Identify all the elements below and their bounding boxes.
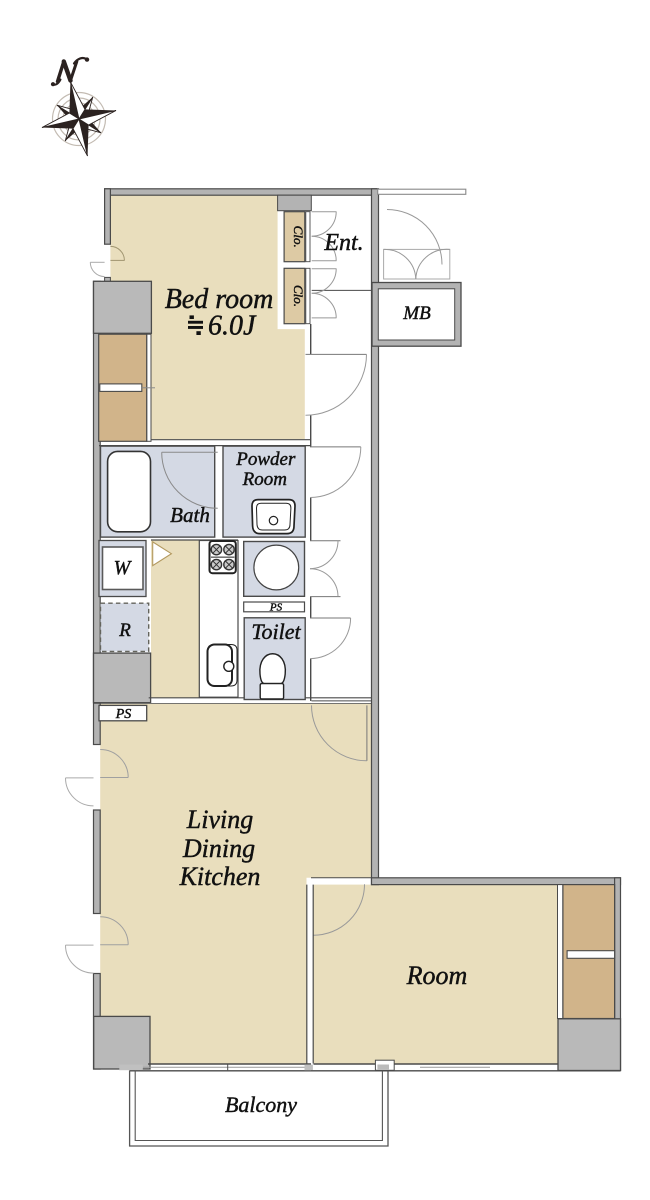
svg-text:Dining: Dining [182, 834, 255, 863]
svg-text:Balcony: Balcony [225, 1092, 297, 1117]
svg-text:Room: Room [406, 961, 468, 990]
svg-text:Clo.: Clo. [291, 285, 306, 307]
svg-text:PS: PS [115, 707, 132, 722]
svg-text:6.0J: 6.0J [208, 311, 257, 342]
svg-text:Ent.: Ent. [323, 230, 363, 256]
svg-text:W: W [114, 557, 133, 579]
svg-text:Bath: Bath [170, 503, 210, 527]
svg-text:R: R [118, 620, 131, 641]
svg-text:Clo.: Clo. [291, 226, 306, 248]
svg-text:MB: MB [402, 303, 431, 324]
svg-text:Powder: Powder [235, 449, 296, 470]
svg-text:Toilet: Toilet [251, 619, 301, 644]
svg-text:PS: PS [269, 601, 283, 613]
svg-text:Room: Room [242, 469, 287, 490]
svg-text:Kitchen: Kitchen [179, 862, 261, 891]
svg-text:Living: Living [186, 805, 253, 834]
